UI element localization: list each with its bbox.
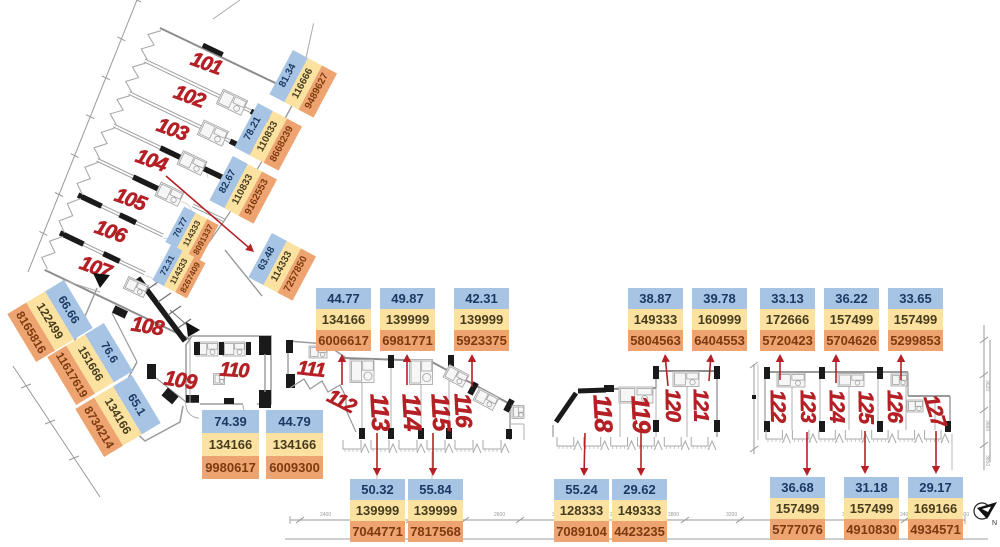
svg-text:N: N [992, 520, 997, 527]
